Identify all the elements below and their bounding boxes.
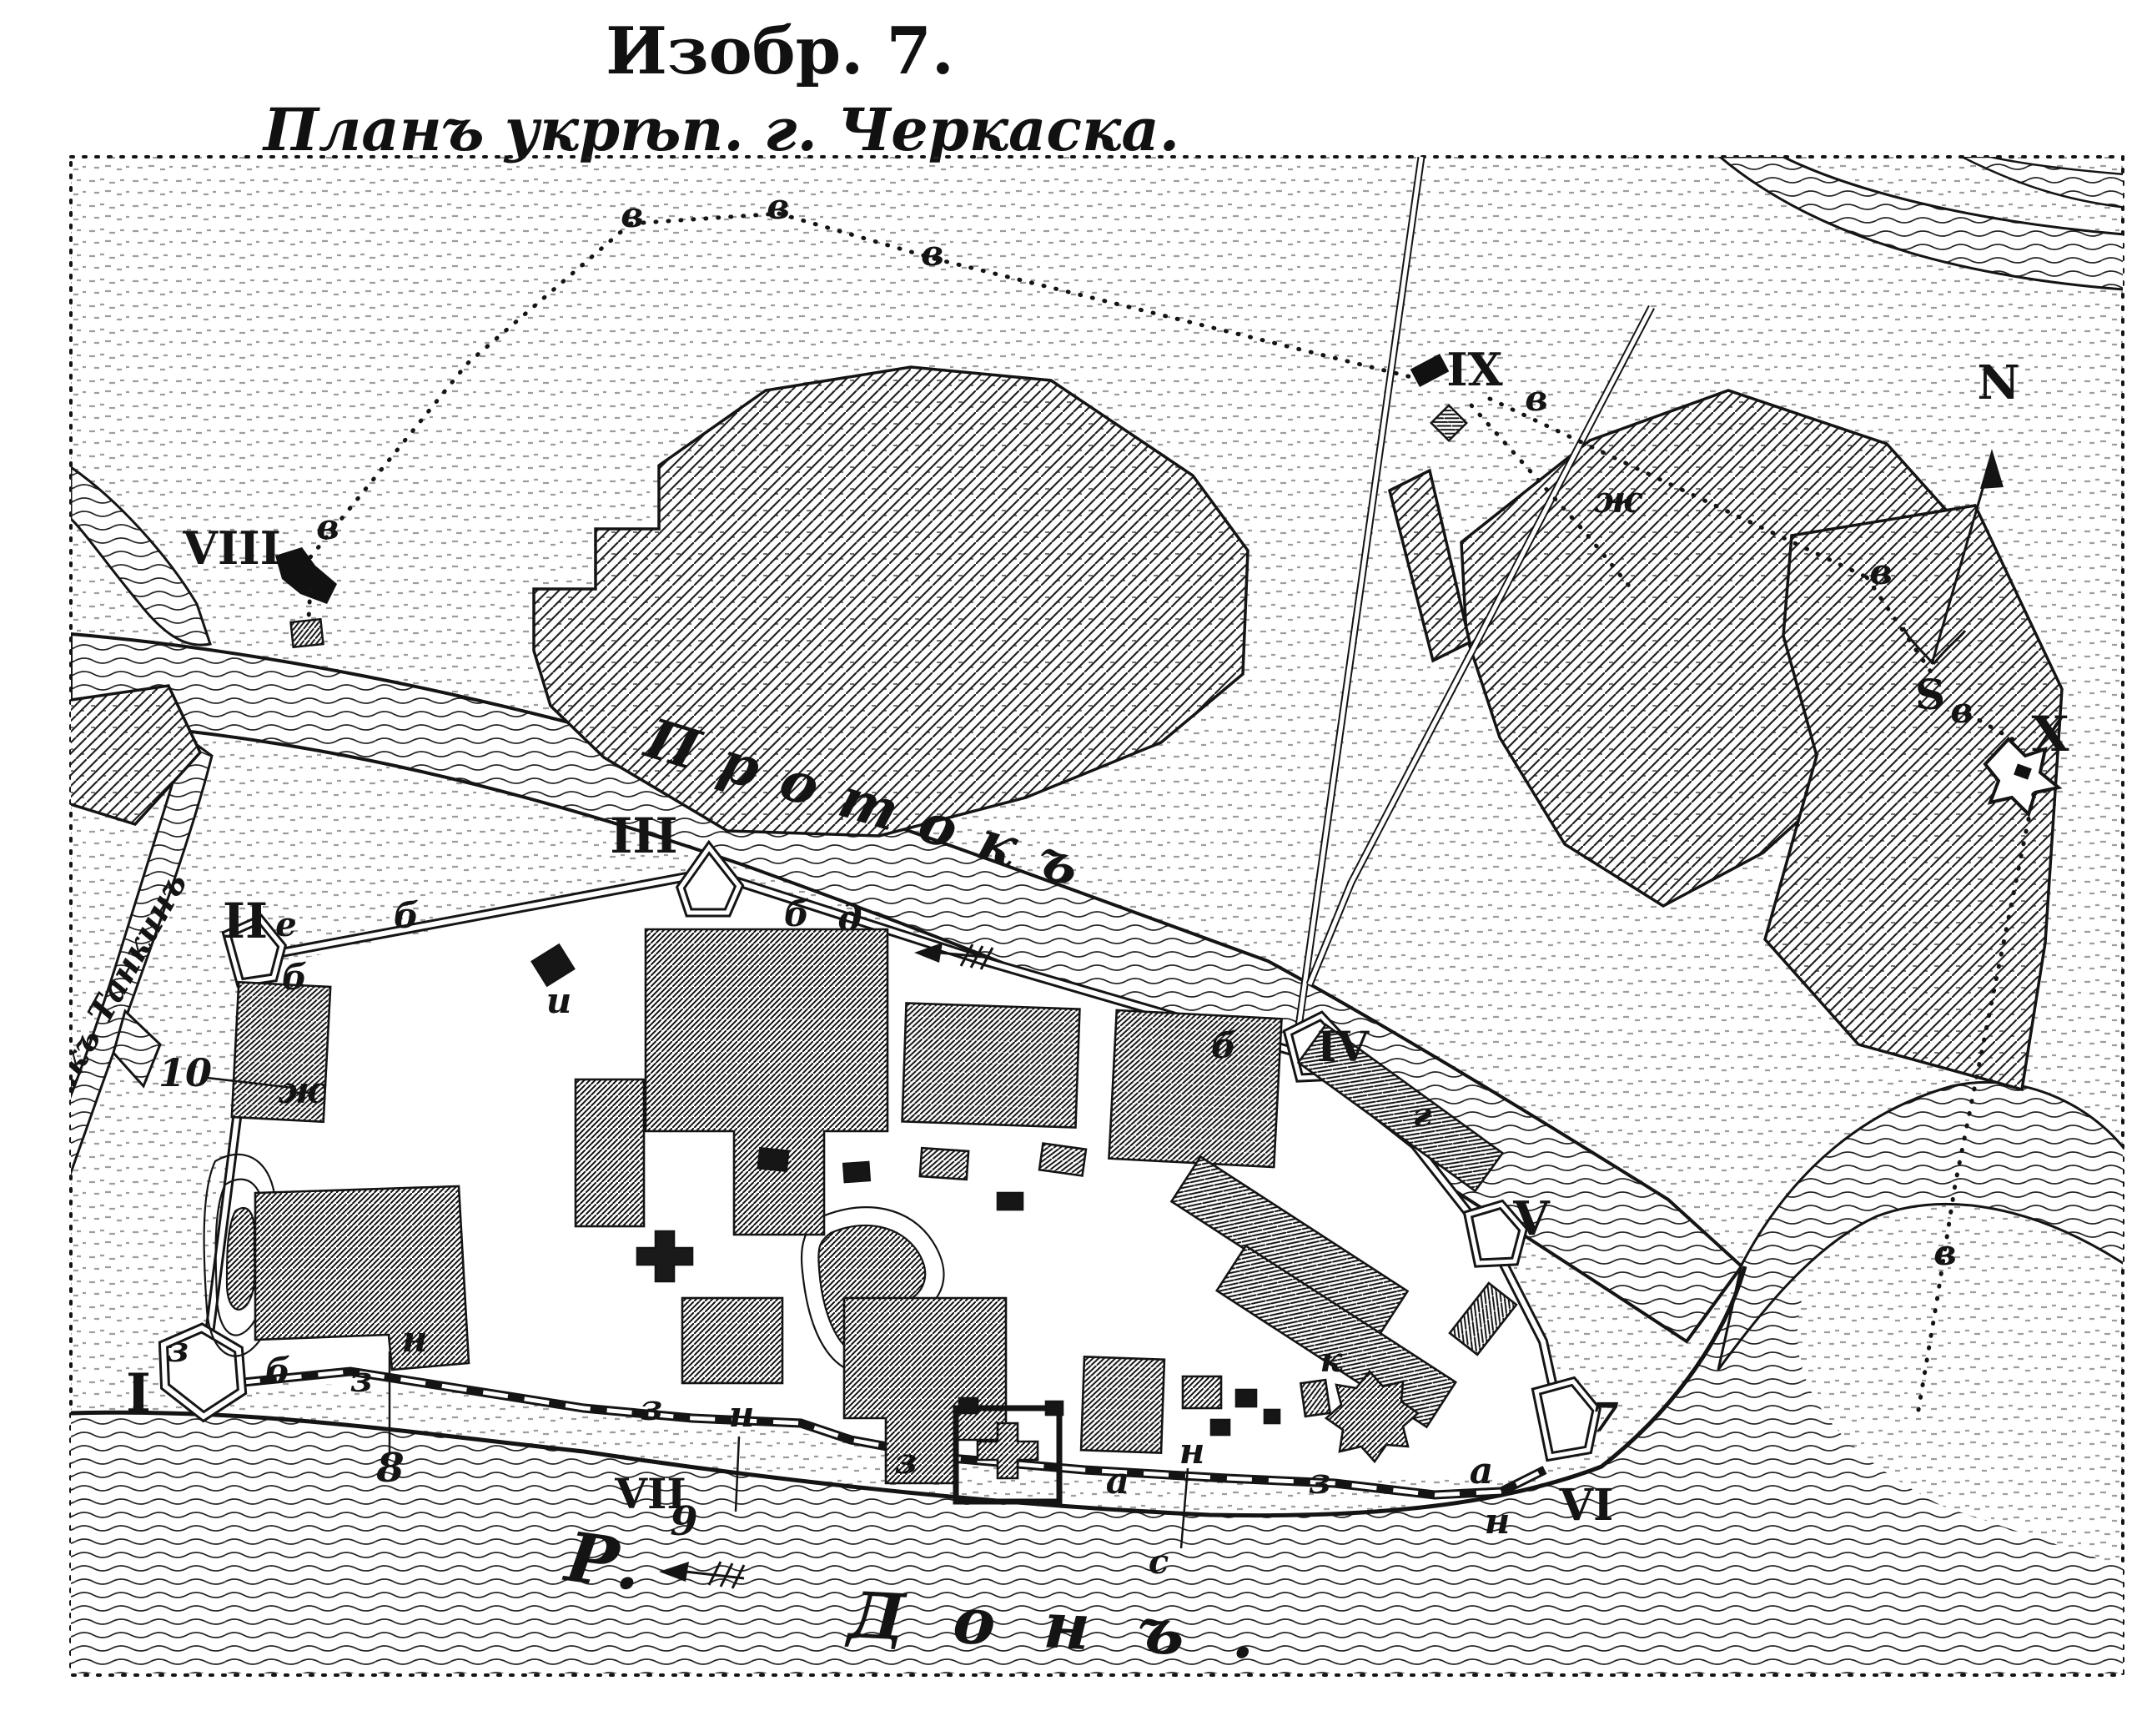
- label-letter-b-2: б: [394, 895, 419, 936]
- label-numeral-ii: II: [223, 893, 268, 949]
- label-letter-n-3: н: [1179, 1431, 1205, 1472]
- label-letter-v-6: в: [1869, 551, 1893, 592]
- label-letter-a-2: а: [1470, 1450, 1494, 1492]
- label-letter-v-4: в: [316, 506, 339, 547]
- label-letter-b-5: б: [265, 1351, 290, 1391]
- label-numeral-iii: III: [610, 808, 677, 864]
- label-letter-b-3: б: [784, 893, 809, 934]
- label-numeral-ix: IX: [1446, 343, 1502, 396]
- label-letter-v-2: в: [767, 186, 790, 227]
- label-letter-b-1: б: [282, 957, 307, 998]
- label-letter-d: д: [837, 898, 862, 938]
- map-sheet: Изобр. 7. Планъ укрѣп. г. Черкаска.: [0, 0, 2152, 1736]
- label-num-8: 8: [375, 1445, 404, 1492]
- redoubt-VIII-square: [291, 619, 324, 647]
- label-letter-v-7: в: [1950, 690, 1974, 731]
- label-letter-a-1: а: [1106, 1460, 1130, 1502]
- map-canvas: Изобр. 7. Планъ укрѣп. г. Черкаска.: [0, 0, 2152, 1736]
- label-numeral-viii: VIII: [182, 521, 281, 575]
- figure-title: Изобр. 7.: [606, 13, 954, 89]
- label-letter-z-4: з: [895, 1441, 918, 1482]
- label-num-10: 10: [158, 1050, 212, 1095]
- label-num-9: 9: [670, 1498, 697, 1545]
- label-letter-g: г: [1413, 1095, 1432, 1135]
- label-letter-v-1: в: [621, 194, 644, 235]
- label-letter-v-3: в: [921, 233, 944, 274]
- label-letter-zh-1: ж: [1594, 479, 1643, 521]
- label-letter-e: е: [275, 905, 296, 944]
- label-letter-z-1: з: [167, 1329, 189, 1370]
- label-letter-z-3: з: [641, 1387, 663, 1428]
- label-numeral-iv: IV: [1317, 1022, 1370, 1071]
- label-letter-k: к: [1320, 1341, 1343, 1380]
- label-river-don-initial: Р.: [560, 1517, 647, 1607]
- label-numeral-v: V: [1512, 1191, 1551, 1246]
- label-compass-s: S: [1915, 670, 1945, 719]
- label-letter-z-5: з: [1309, 1461, 1331, 1502]
- figure-subtitle: Планъ укрѣп. г. Черкаска.: [262, 95, 1179, 164]
- label-letter-b-4: б: [1211, 1025, 1236, 1066]
- label-compass-n: N: [1977, 355, 2019, 410]
- label-letter-n-1: н: [402, 1319, 428, 1360]
- label-letter-n-4: н: [1485, 1501, 1511, 1542]
- label-letter-n-2: н: [729, 1394, 755, 1435]
- label-num-7: 7: [1591, 1395, 1618, 1442]
- label-letter-v-5: в: [1525, 378, 1548, 419]
- label-numeral-i: I: [126, 1362, 151, 1425]
- label-letter-i: и: [546, 980, 572, 1021]
- label-letter-z-2: з: [350, 1359, 373, 1400]
- label-numeral-vi: VI: [1559, 1480, 1614, 1531]
- label-letter-s: с: [1149, 1542, 1169, 1582]
- label-letter-v-8: в: [1933, 1232, 1957, 1273]
- label-letter-zh-2: ж: [278, 1069, 327, 1112]
- label-numeral-x: X: [2031, 706, 2069, 762]
